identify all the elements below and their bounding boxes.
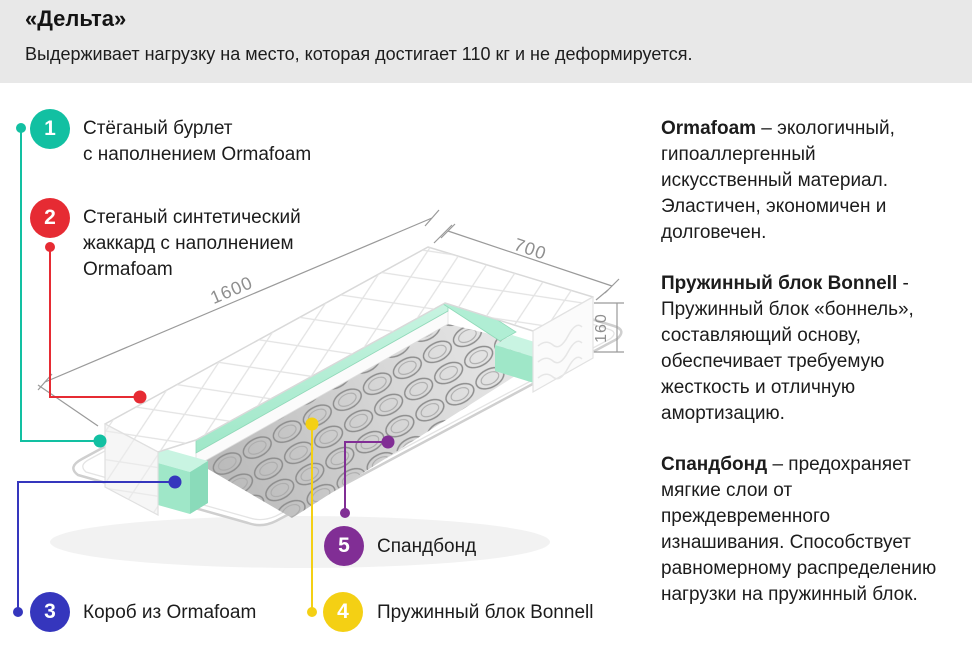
callout-label-1: Стёганый бурлет с наполнением Ormafoam [83, 116, 311, 168]
mattress-infographic: «Дельта» Выдерживает нагрузку на место, … [0, 0, 972, 647]
callout-circle-3: 3 [30, 592, 70, 632]
callout-label-3: Короб из Ormafoam [83, 600, 256, 626]
info-term-bonnell: Пружинный блок Bonnell [661, 273, 897, 294]
info-paragraph-bonnell: Пружинный блок Bonnell - Пружинный блок … [661, 271, 945, 427]
info-column: Ormafoam – экологичный, гипоаллергенный … [661, 116, 945, 633]
callout-circle-4: 4 [323, 592, 363, 632]
info-term-ormafoam: Ormafoam [661, 118, 756, 139]
callout-number-3: 3 [44, 600, 56, 624]
info-paragraph-spunbond: Спандбонд – предохраняет мягкие слои от … [661, 452, 945, 608]
callout-circle-1: 1 [30, 109, 70, 149]
callout-label-4: Пружинный блок Bonnell [377, 600, 593, 626]
callout-number-4: 4 [337, 600, 349, 624]
connector-1 [16, 123, 107, 448]
dimension-height-label: 160 [593, 313, 610, 343]
info-term-spunbond: Спандбонд [661, 454, 767, 475]
info-text-spunbond: – предохраняет мягкие слои от преждеврем… [661, 454, 936, 605]
callout-number-2: 2 [44, 206, 56, 230]
callout-label-2: Стеганый синтетический жаккард с наполне… [83, 205, 301, 283]
info-text-bonnell: - Пружинный блок «боннель», составляющий… [661, 273, 914, 424]
callout-circle-5: 5 [324, 526, 364, 566]
dimension-width-label: 700 [511, 234, 549, 264]
info-paragraph-ormafoam: Ormafoam – экологичный, гипоаллергенный … [661, 116, 945, 246]
callout-label-5: Спандбонд [377, 534, 476, 560]
callout-circle-2: 2 [30, 198, 70, 238]
callout-number-1: 1 [44, 117, 56, 141]
callout-number-5: 5 [338, 534, 350, 558]
